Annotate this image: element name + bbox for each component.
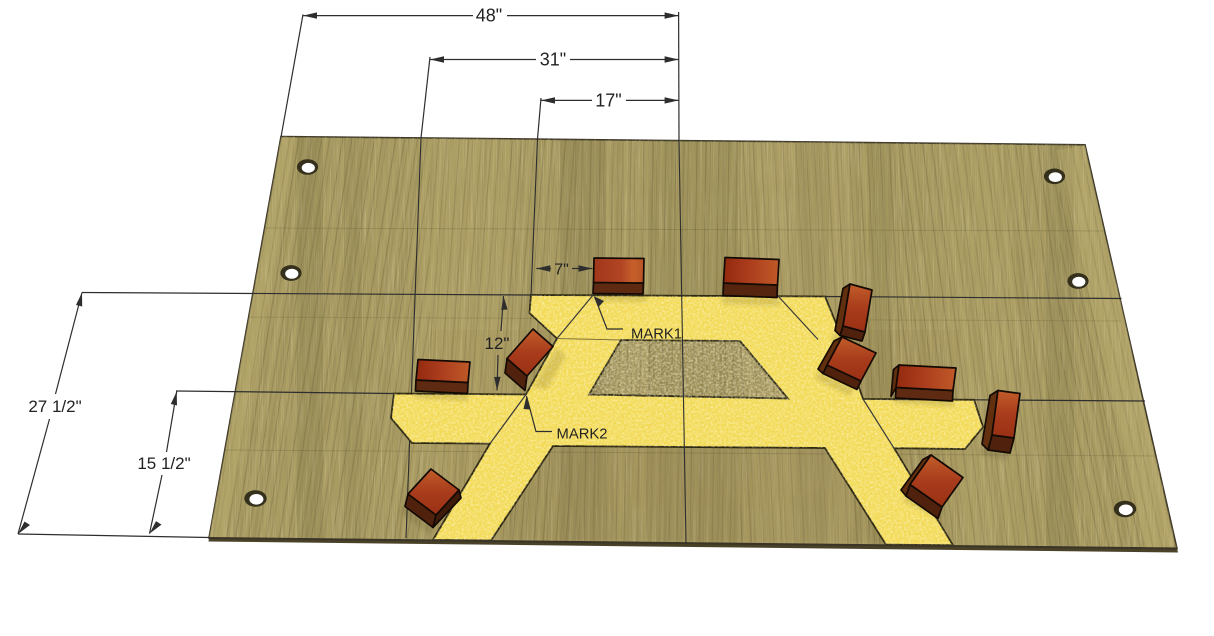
svg-text:MARK1: MARK1: [631, 327, 682, 343]
svg-text:31": 31": [540, 50, 566, 70]
svg-text:48": 48": [476, 6, 502, 26]
svg-text:27 1/2": 27 1/2": [28, 397, 81, 416]
svg-text:12": 12": [485, 334, 510, 353]
svg-text:MARK2: MARK2: [557, 427, 608, 443]
svg-text:15 1/2": 15 1/2": [137, 454, 190, 473]
svg-text:7": 7": [554, 262, 569, 279]
svg-text:17": 17": [595, 91, 621, 111]
